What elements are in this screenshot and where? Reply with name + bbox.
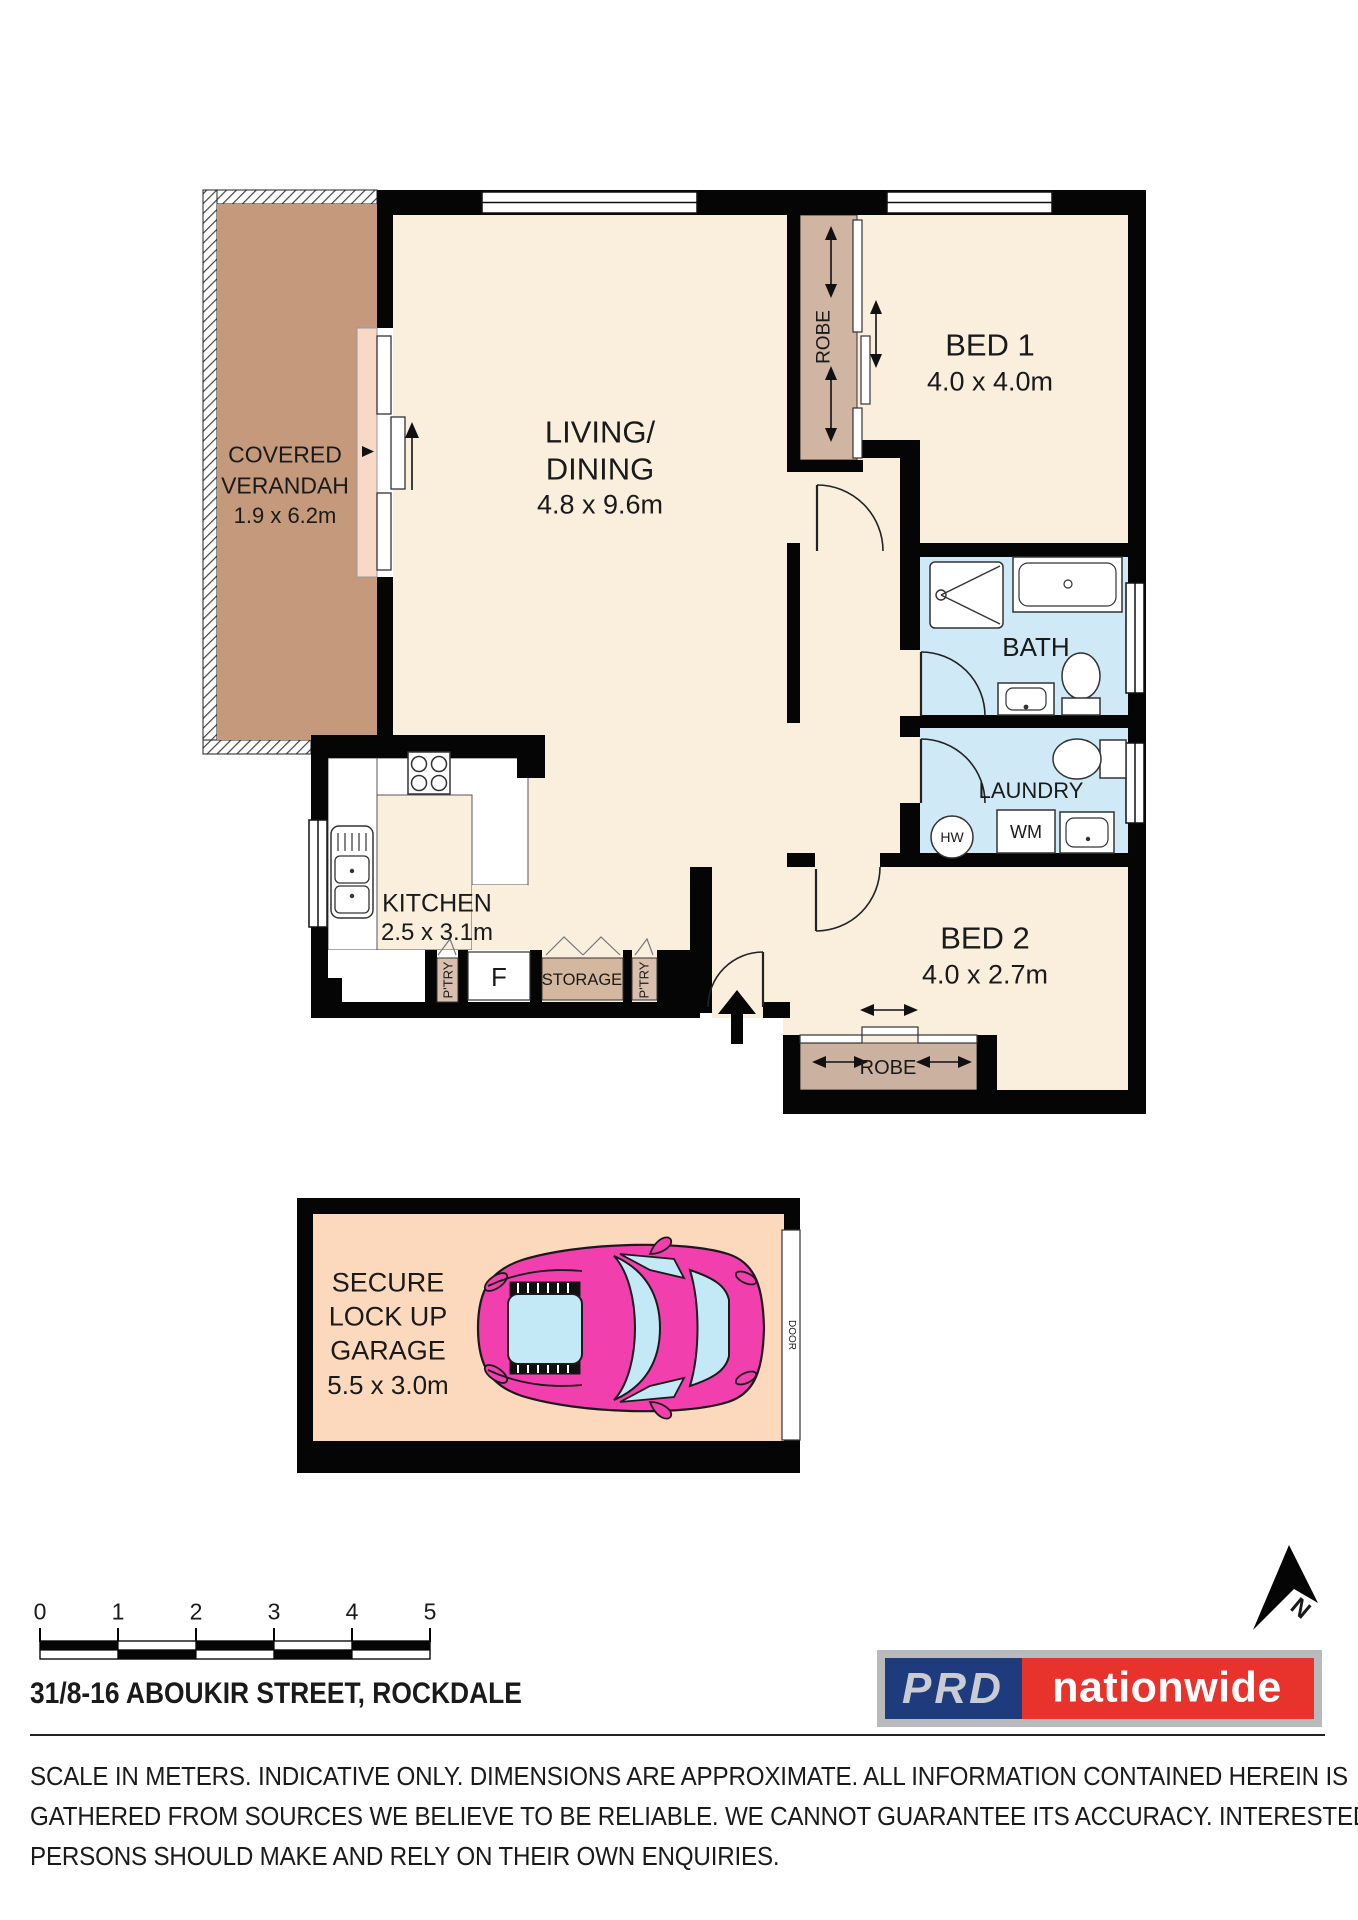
- scale-mark-1: 1: [112, 1601, 125, 1624]
- hot-water-label: HW: [940, 830, 963, 844]
- car-icon: [478, 1237, 764, 1418]
- laundry-label: LAUNDRY: [979, 780, 1084, 802]
- floorplan-page: COVERED VERANDAH 1.9 x 6.2m LIVING/ DINI…: [0, 0, 1358, 1920]
- disclaimer-line-1: SCALE IN METERS. INDICATIVE ONLY. DIMENS…: [30, 1756, 1348, 1796]
- scale-mark-0: 0: [34, 1601, 47, 1624]
- bed1-dims: 4.0 x 4.0m: [927, 369, 1053, 396]
- floorplan-graphics: [0, 0, 1358, 1920]
- garage-label-2: LOCK UP: [329, 1304, 448, 1331]
- north-arrow-icon: [1253, 1545, 1318, 1630]
- scale-mark-2: 2: [190, 1601, 203, 1624]
- robe2-label: ROBE: [860, 1058, 917, 1078]
- scale-mark-4: 4: [346, 1601, 359, 1624]
- scale-mark-5: 5: [424, 1601, 437, 1624]
- property-address: 31/8-16 ABOUKIR STREET, ROCKDALE: [30, 1677, 522, 1711]
- garage-label-3: GARAGE: [330, 1338, 446, 1365]
- kitchen-sink-icon: [331, 826, 373, 918]
- robe1-label: ROBE: [815, 310, 834, 364]
- living-label2: DINING: [546, 454, 655, 485]
- bed1-label: BED 1: [945, 330, 1035, 361]
- garage-label-1: SECURE: [332, 1270, 445, 1297]
- verandah-label: COVERED: [228, 444, 342, 467]
- disclaimer-line-2: GATHERED FROM SOURCES WE BELIEVE TO BE R…: [30, 1796, 1358, 1836]
- prd-logo-text: PRD: [902, 1667, 1004, 1711]
- kitchen-label: KITCHEN: [382, 892, 492, 917]
- footer-divider: [30, 1734, 1325, 1736]
- garage-dims: 5.5 x 3.0m: [327, 1372, 448, 1398]
- storage-label: STORAGE: [542, 972, 622, 989]
- nationwide-logo-text: nationwide: [1052, 1667, 1282, 1710]
- pantry2-label: P'TRY: [638, 962, 651, 999]
- scale-bar: [40, 1628, 430, 1659]
- shower-icon: [930, 562, 1003, 628]
- verandah-dims: 1.9 x 6.2m: [234, 505, 337, 527]
- bed2-dims: 4.0 x 2.7m: [922, 962, 1048, 989]
- kitchen-dims: 2.5 x 3.1m: [381, 921, 493, 945]
- scale-mark-3: 3: [268, 1601, 281, 1624]
- laundry-toilet-icon: [1053, 739, 1126, 779]
- bath-label: BATH: [1002, 634, 1069, 660]
- disclaimer-line-3: PERSONS SHOULD MAKE AND RELY ON THEIR OW…: [30, 1836, 779, 1876]
- bed2-label: BED 2: [940, 923, 1030, 954]
- living-label: LIVING/: [545, 417, 655, 448]
- living-dims: 4.8 x 9.6m: [537, 492, 663, 519]
- bathtub-icon: [1013, 557, 1122, 612]
- cooktop-icon: [408, 752, 450, 794]
- garage-door-label: DOOR: [786, 1320, 796, 1350]
- washing-machine-label: WM: [1010, 823, 1042, 841]
- bed2-floor-a: [712, 867, 1128, 1018]
- bath-basin-icon: [998, 683, 1054, 715]
- bath-toilet-icon: [1062, 653, 1100, 715]
- laundry-tub-icon: [1060, 812, 1114, 853]
- pantry1-label: P'TRY: [442, 962, 455, 999]
- verandah-label2: VERANDAH: [221, 475, 349, 498]
- fridge-label: F: [491, 964, 507, 990]
